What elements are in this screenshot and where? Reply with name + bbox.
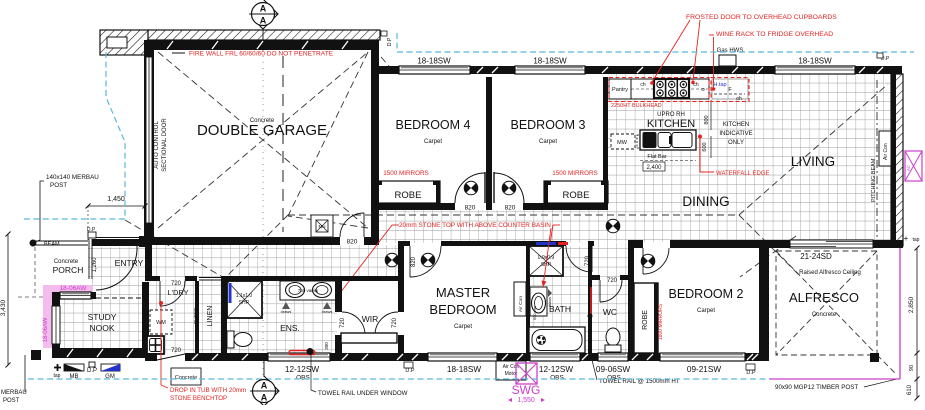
svg-text:L'DRY: L'DRY <box>167 288 188 297</box>
svg-text:18-18SW: 18-18SW <box>417 57 451 66</box>
svg-text:600 van: 600 van <box>532 306 537 320</box>
svg-text:ROBE: ROBE <box>395 190 422 201</box>
svg-text:ONLY: ONLY <box>728 140 744 146</box>
svg-text:A: A <box>261 393 268 403</box>
svg-text:D.P: D.P <box>405 368 415 374</box>
svg-text:140x140 MERBAU: 140x140 MERBAU <box>46 174 99 181</box>
svg-text:SWG: SWG <box>512 383 541 397</box>
svg-text:Flat Bar: Flat Bar <box>647 154 666 160</box>
svg-text:820: 820 <box>465 205 476 212</box>
svg-text:PORCH: PORCH <box>53 265 84 275</box>
svg-text:MH: MH <box>319 224 326 229</box>
svg-text:1,550: 1,550 <box>517 397 535 404</box>
svg-text:1500 MIRRORS: 1500 MIRRORS <box>383 170 429 177</box>
svg-text:BATH: BATH <box>549 304 571 314</box>
svg-text:12-12SW: 12-12SW <box>285 365 319 374</box>
svg-text:SHR: SHR <box>239 300 250 306</box>
svg-text:Carpet: Carpet <box>424 139 442 145</box>
svg-text:tap: tap <box>913 237 920 243</box>
svg-text:D.P: D.P <box>746 370 756 376</box>
svg-text:+: + <box>904 234 909 243</box>
svg-text:1800 MIRRORS: 1800 MIRRORS <box>658 303 664 340</box>
svg-text:POST: POST <box>50 182 67 189</box>
svg-text:OBS: OBS <box>607 375 621 382</box>
svg-text:WATERFALL EDGE: WATERFALL EDGE <box>716 171 769 177</box>
svg-text:720: 720 <box>340 317 346 328</box>
svg-text:DOUBLE GARAGE: DOUBLE GARAGE <box>197 122 327 139</box>
svg-text:KITCHEN: KITCHEN <box>647 118 695 130</box>
svg-text:820: 820 <box>347 239 358 246</box>
svg-text:Carpet: Carpet <box>454 324 472 330</box>
svg-text:Concrete: Concrete <box>812 312 837 318</box>
svg-text:MASTER: MASTER <box>436 285 490 300</box>
svg-text:820: 820 <box>505 205 516 212</box>
svg-text:ROBE: ROBE <box>563 190 590 201</box>
svg-text:BEDROOM: BEDROOM <box>429 302 496 317</box>
svg-text:FROSTED DOOR TO OVERHEAD CUPBO: FROSTED DOOR TO OVERHEAD CUPBOARDS <box>686 14 837 21</box>
svg-text:21-24SD: 21-24SD <box>800 252 832 261</box>
svg-text:BEDROOM 4: BEDROOM 4 <box>395 118 470 132</box>
svg-text:Gas HWS: Gas HWS <box>717 48 744 54</box>
svg-text:NOOK: NOOK <box>89 323 114 333</box>
svg-text:BEDROOM 2: BEDROOM 2 <box>668 287 743 301</box>
svg-text:MW: MW <box>617 140 628 146</box>
svg-text:INDICATIVE: INDICATIVE <box>719 131 752 137</box>
svg-text:LINEN: LINEN <box>207 306 214 327</box>
svg-text:90: 90 <box>909 365 915 371</box>
svg-text:LIVING: LIVING <box>791 154 835 169</box>
svg-text:1,450: 1,450 <box>107 196 125 203</box>
svg-text:Air Con: Air Con <box>883 143 889 160</box>
svg-text:WC: WC <box>603 307 617 317</box>
svg-text:2,850: 2,850 <box>908 296 915 313</box>
svg-text:STONE BENCHTOP: STONE BENCHTOP <box>170 395 227 402</box>
svg-text:12-12SW: 12-12SW <box>539 365 573 374</box>
svg-text:18-06AW: 18-06AW <box>43 317 49 342</box>
svg-text:Raised Alfresco Ceiling: Raised Alfresco Ceiling <box>799 270 861 276</box>
svg-text:D.P: D.P <box>387 37 393 46</box>
svg-text:720: 720 <box>171 348 182 354</box>
svg-text:0.9x0.9: 0.9x0.9 <box>538 255 555 261</box>
svg-text:KITCHEN: KITCHEN <box>723 122 749 128</box>
svg-text:MERBAU: MERBAU <box>1 390 27 396</box>
svg-text:tap: tap <box>54 373 61 379</box>
svg-text:ch: ch <box>640 82 646 88</box>
svg-text:20mm STONE TOP WITH ABOVE COUN: 20mm STONE TOP WITH ABOVE COUNTER BASIN <box>399 222 551 229</box>
svg-text:AUTO CONTROL: AUTO CONTROL <box>154 121 160 169</box>
svg-text:draws: draws <box>322 309 333 314</box>
svg-text:PITCHING BEAM: PITCHING BEAM <box>871 158 877 202</box>
svg-text:1500 MIRRORS: 1500 MIRRORS <box>552 170 598 177</box>
svg-text:STUDY: STUDY <box>88 312 117 322</box>
svg-text:09-06SW: 09-06SW <box>596 365 630 374</box>
svg-text:oh: oh <box>736 96 742 102</box>
svg-text:09-21SW: 09-21SW <box>687 365 721 374</box>
svg-text:Carpet: Carpet <box>539 139 557 145</box>
svg-text:Air Con: Air Con <box>518 296 524 312</box>
svg-text:ENTRY: ENTRY <box>115 258 144 268</box>
svg-text:WINE RACK TO FRIDGE OVERHEAD: WINE RACK TO FRIDGE OVERHEAD <box>716 31 833 38</box>
svg-text:draws: draws <box>548 297 552 307</box>
svg-text:1.1x1.0: 1.1x1.0 <box>236 293 253 299</box>
svg-text:720: 720 <box>171 281 182 287</box>
svg-text:OBS: OBS <box>550 375 564 382</box>
svg-text:H.tap: H.tap <box>713 82 726 88</box>
svg-text:610: 610 <box>907 384 913 395</box>
svg-text:BEDROOM 3: BEDROOM 3 <box>510 118 585 132</box>
svg-text:A: A <box>260 4 267 14</box>
svg-text:FIRE WALL FRL 60/60/60 DO NOT: FIRE WALL FRL 60/60/60 DO NOT PENETRATE <box>189 51 334 58</box>
svg-text:A: A <box>260 16 267 26</box>
svg-text:Pantry: Pantry <box>612 87 628 93</box>
svg-text:720: 720 <box>607 278 618 284</box>
svg-text:1,260: 1,260 <box>92 257 98 273</box>
svg-text:18-06AW: 18-06AW <box>60 285 88 292</box>
svg-text:2250HT BULKHEAD: 2250HT BULKHEAD <box>611 103 662 109</box>
svg-text:OBS: OBS <box>296 375 310 382</box>
svg-text:draws: draws <box>281 309 292 314</box>
svg-text:ROBE: ROBE <box>642 310 649 330</box>
svg-text:Carpet: Carpet <box>697 308 715 314</box>
svg-text:DROP IN TUB WITH 20mm: DROP IN TUB WITH 20mm <box>170 387 246 394</box>
svg-text:3,430: 3,430 <box>0 299 7 316</box>
svg-text:90x90 MGP12 TIMBER POST: 90x90 MGP12 TIMBER POST <box>775 384 858 391</box>
svg-text:O: O <box>701 87 705 92</box>
svg-text:A: A <box>261 381 268 391</box>
svg-text:18-18SW: 18-18SW <box>798 57 832 66</box>
svg-text:18-18SW: 18-18SW <box>533 57 567 66</box>
svg-text:D.P: D.P <box>87 368 97 374</box>
svg-text:ALFRESCO: ALFRESCO <box>789 290 859 305</box>
svg-text:600: 600 <box>702 142 708 151</box>
svg-text:300: 300 <box>324 342 329 350</box>
svg-text:DINING: DINING <box>682 194 729 209</box>
svg-text:BEAM: BEAM <box>44 242 60 248</box>
svg-text:ENS.: ENS. <box>280 323 300 333</box>
svg-text:2,400: 2,400 <box>646 165 662 171</box>
svg-text:800: 800 <box>704 115 710 124</box>
svg-text:750 vanity: 750 vanity <box>298 288 319 293</box>
svg-text:720: 720 <box>392 317 398 328</box>
svg-text:SECTIONAL DOOR: SECTIONAL DOOR <box>162 118 168 172</box>
svg-text:TOWEL RAIL UNDER WINDOW: TOWEL RAIL UNDER WINDOW <box>318 390 408 397</box>
svg-text:Concrete: Concrete <box>175 375 197 381</box>
svg-text:Air Con: Air Con <box>503 364 520 370</box>
svg-text:820: 820 <box>411 256 417 267</box>
svg-text:WIR: WIR <box>362 314 379 324</box>
svg-text:SLIDER: SLIDER <box>193 307 198 324</box>
svg-text:AC: AC <box>906 164 911 171</box>
svg-text:POST: POST <box>3 398 20 404</box>
svg-text:18-18SW: 18-18SW <box>447 365 481 374</box>
